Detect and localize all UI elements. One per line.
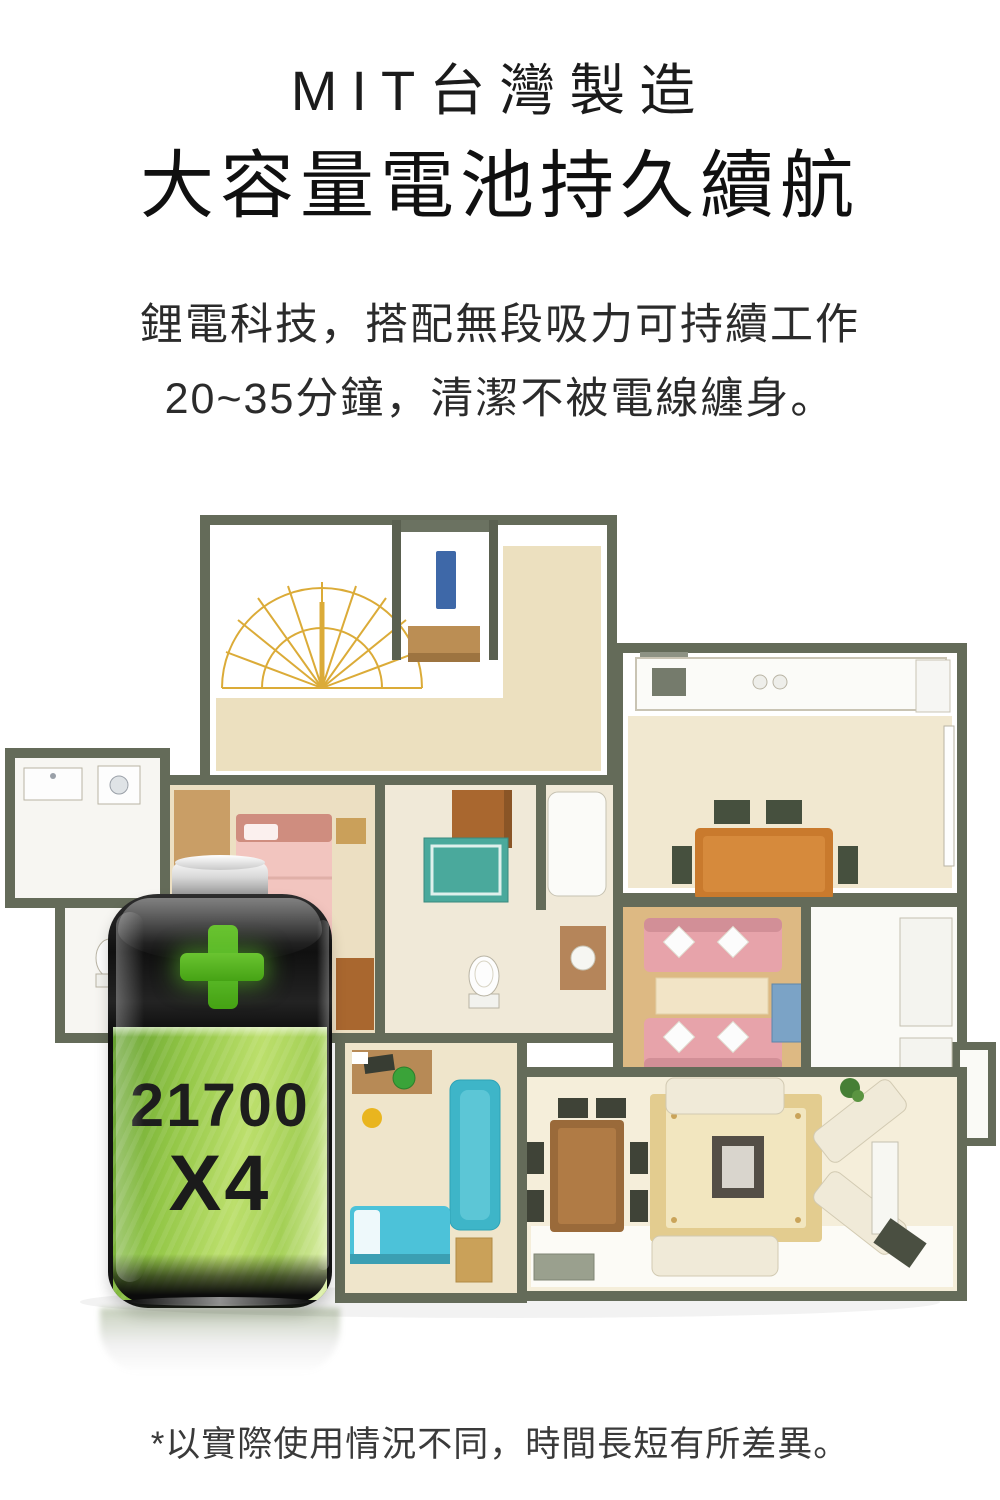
pink-sofa-bottom <box>644 1018 782 1072</box>
description-line-1: 鋰電科技，搭配無段吸力可持續工作 <box>0 290 1000 352</box>
room-stairs <box>205 520 612 782</box>
blue-mat <box>450 1080 500 1230</box>
fridge <box>916 660 950 712</box>
disclaimer-footnote: *以實際使用情況不同，時間長短有所差異。 <box>0 1416 1000 1467</box>
battery-capacity-label: 21700 <box>108 1075 332 1136</box>
desk-chair <box>393 1067 415 1089</box>
room-living <box>522 1072 962 1296</box>
blue-wall-sign <box>436 551 456 609</box>
tv-cabinet <box>772 984 802 1042</box>
shoe-bench <box>408 626 480 656</box>
battery-shell: 21700 X4 <box>108 894 332 1308</box>
shower-stall <box>424 838 508 902</box>
battery-illustration: 21700 X4 <box>108 850 332 1380</box>
pink-sofa-top <box>644 918 782 972</box>
stool <box>362 1108 382 1128</box>
cream-sofa-top <box>666 1078 784 1114</box>
room-study <box>340 1038 522 1298</box>
room-kitchen <box>618 648 962 900</box>
room-pink-lounge <box>618 902 806 1088</box>
wardrobe <box>336 958 374 1030</box>
cream-sofa-bottom <box>652 1236 778 1276</box>
battery-reflection <box>100 1308 340 1374</box>
made-in-taiwan-tagline: MIT台灣製造 <box>0 46 1000 127</box>
door-mat <box>534 1254 594 1280</box>
ornate-rug <box>650 1094 822 1242</box>
room-bathroom <box>380 780 618 1038</box>
toilet <box>469 956 499 1008</box>
page-title: 大容量電池持久續航 <box>0 126 1000 233</box>
battery-count-label: X4 <box>108 1143 332 1222</box>
battery-bottom-shine <box>128 1297 312 1306</box>
battery-right-highlight <box>317 920 329 1270</box>
battery-plus-icon <box>180 953 264 981</box>
teal-daybed <box>350 1206 450 1264</box>
description-line-2: 20~35分鐘，清潔不被電線纏身。 <box>0 364 1000 426</box>
laundry-sink <box>24 768 82 800</box>
bathtub <box>548 792 606 896</box>
product-promo-page: { "page": {"background": "#ffffff"}, "he… <box>0 0 1000 1500</box>
